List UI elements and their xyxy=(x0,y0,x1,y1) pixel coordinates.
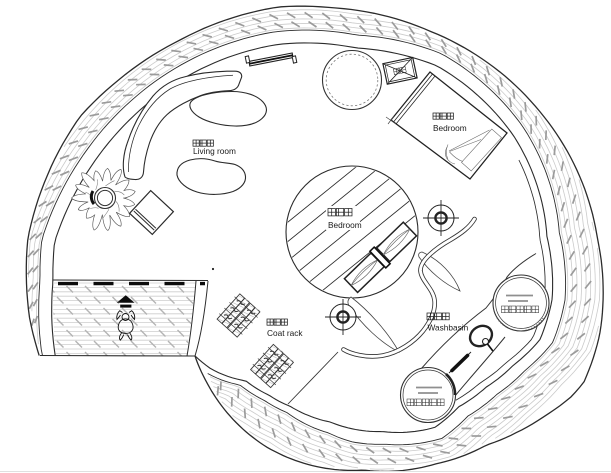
svg-text:Living room: Living room xyxy=(193,146,236,156)
svg-text:Coat rack: Coat rack xyxy=(267,328,303,338)
svg-text:Bedroom: Bedroom xyxy=(433,123,467,133)
svg-text:Bedroom: Bedroom xyxy=(328,220,362,230)
svg-text:Washbasin: Washbasin xyxy=(428,323,469,333)
